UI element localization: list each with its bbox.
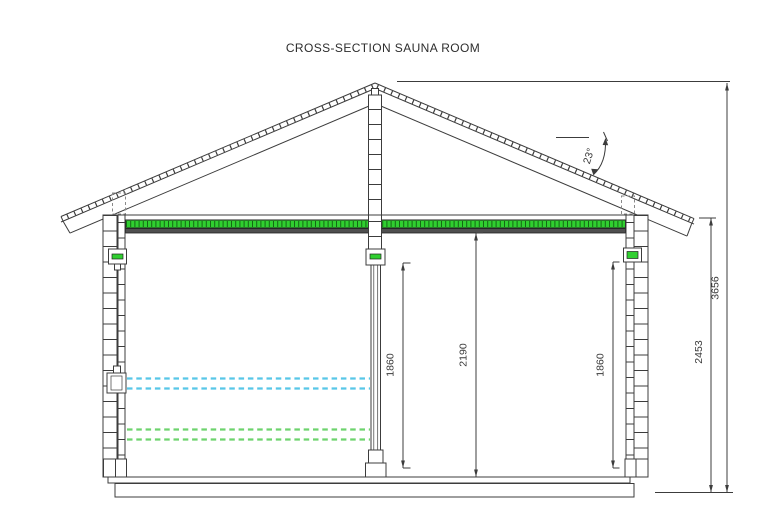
right-wall-vent-slider — [627, 252, 638, 259]
partition-vent-slider — [370, 254, 381, 259]
dim-label-left-opening: 1860 — [385, 353, 397, 377]
partition-foot — [366, 450, 387, 477]
drawing-title: CROSS-SECTION SAUNA ROOM — [286, 41, 480, 55]
angle-label: 23° — [581, 147, 597, 166]
cross-section-drawing: CROSS-SECTION SAUNA ROOM — [0, 0, 768, 531]
dim-label-overall-height: 3656 — [710, 276, 722, 300]
left-wall-vent-slider — [112, 254, 123, 259]
right-wall-foot — [625, 459, 648, 477]
partition-vent — [366, 249, 385, 265]
dimension-eave-height: 2453 — [693, 218, 716, 493]
dim-label-room-height: 2190 — [458, 343, 470, 367]
dimension-overall-height: 3656 — [397, 82, 733, 493]
dimension-right-opening: 1860 — [595, 262, 620, 468]
roof-left-board-ticks — [63, 87, 373, 219]
roof-left-slope — [61, 83, 375, 233]
dim-label-eave-height: 2453 — [693, 340, 705, 364]
king-post — [369, 89, 382, 216]
dim-label-right-opening: 1860 — [595, 353, 607, 377]
dimension-room-height: 2190 — [458, 233, 484, 477]
left-wall — [103, 215, 127, 477]
floor-deck — [108, 477, 630, 483]
drawing-page: CROSS-SECTION SAUNA ROOM — [0, 0, 768, 531]
roof-right-board-ticks — [377, 87, 692, 221]
partition-panel — [371, 265, 381, 450]
right-wall — [624, 215, 649, 477]
foundation-beam — [115, 484, 634, 498]
partition-through-ceiling — [369, 215, 382, 249]
left-wall-foot — [104, 459, 127, 477]
roof-group — [61, 83, 694, 236]
bench-level-lines — [127, 379, 370, 440]
center-partition — [366, 215, 387, 477]
dimension-left-opening: 1860 — [385, 263, 411, 468]
right-wall-vent — [624, 248, 642, 262]
roof-right-slope — [375, 83, 694, 236]
